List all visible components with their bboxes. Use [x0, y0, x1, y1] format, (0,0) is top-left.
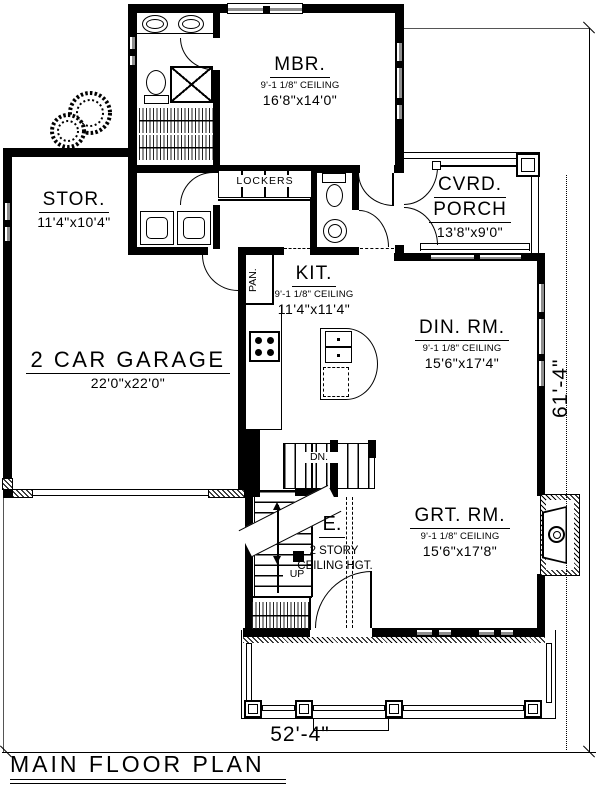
room-label-garage: 2 CAR GARAGE 22'0"x22'0": [16, 348, 240, 391]
toilet-tank: [322, 173, 346, 183]
extension-line: [404, 28, 590, 29]
wall-segment: [213, 205, 220, 249]
porch-step: [420, 249, 530, 250]
wall-segment: [128, 4, 137, 169]
porch-railing: [403, 705, 524, 711]
porch-step-edge: [529, 243, 530, 251]
porch-post: [516, 153, 540, 177]
entry-closet-hatch: [252, 602, 309, 629]
porch-post: [244, 700, 262, 718]
kitchen-counter: [246, 305, 282, 430]
window: [227, 3, 303, 14]
wall-segment: [537, 445, 545, 496]
dimension-height-label: 61'-4": [550, 336, 576, 440]
window: [430, 254, 522, 260]
opening-dashed: [338, 443, 368, 444]
bench-line: [218, 199, 312, 201]
porch-railing: [546, 643, 552, 703]
entry-note-2: CEILING HGT.: [296, 560, 374, 572]
room-label-porch: CVRD. PORCH 13'8"x9'0": [414, 175, 526, 240]
wall-segment: [395, 245, 404, 261]
door-swing: [202, 255, 238, 291]
closet-rod-hatch: [139, 108, 213, 133]
closet-wall: [309, 596, 311, 630]
wall-segment: [3, 148, 12, 498]
porch-post: [385, 700, 403, 718]
extension-line-dotted: [566, 175, 567, 750]
door-swing: [180, 172, 213, 205]
porch-beam: [440, 165, 520, 167]
toilet-tank: [144, 95, 169, 104]
stair-direction-line: [277, 505, 279, 593]
sink-basin: [142, 15, 168, 33]
cooktop: [249, 331, 280, 362]
window: [129, 36, 136, 66]
toilet: [326, 184, 343, 207]
dimension-line-right: [589, 28, 590, 752]
room-label-grt: GRT. RM. 9'-1 1/8" CEILING 15'6"x17'8": [402, 506, 518, 559]
toilet: [146, 70, 166, 95]
porch-railing: [246, 643, 252, 703]
wall-hatch: [2, 478, 13, 490]
round-sink: [323, 219, 347, 243]
title-underline: [10, 779, 286, 784]
door-swing: [359, 210, 389, 247]
fireplace-flue: [548, 526, 565, 543]
wall-segment: [310, 247, 359, 255]
window: [396, 42, 403, 120]
stair-arrow: [273, 556, 281, 564]
opening-dashed: [284, 248, 310, 249]
garage-door: [33, 489, 208, 496]
porch-post: [524, 700, 542, 718]
threshold-hatch: [243, 637, 545, 643]
stair-dn-label: DN.: [300, 452, 338, 463]
extension-line: [3, 498, 4, 752]
door-leaf: [370, 571, 372, 628]
dryer: [177, 211, 211, 245]
dishwasher: [323, 367, 349, 397]
stair-arrow: [273, 502, 281, 510]
wall-segment: [537, 574, 545, 637]
window: [4, 202, 11, 242]
entry-note-1: 2 STORY: [302, 545, 366, 557]
pantry-label: PAN.: [248, 258, 264, 302]
window: [538, 283, 545, 387]
island-sink: [325, 347, 352, 363]
beam-anchor: [432, 161, 441, 170]
wall-segment: [213, 13, 220, 38]
porch-step: [420, 243, 530, 244]
porch-step-edge: [420, 243, 421, 251]
room-label-kit: KIT. 9'-1 1/8" CEILING 11'4"x11'4": [262, 264, 366, 317]
stair-upper-run: [283, 443, 375, 489]
porch-railing: [313, 705, 385, 711]
room-label-mbr: MBR. 9'-1 1/8" CEILING 16'8"x14'0": [238, 55, 362, 108]
garage-door-jamb: [12, 489, 33, 498]
dimension-width-label: 52'-4": [240, 724, 360, 746]
wall-segment: [213, 70, 220, 172]
porch-railing: [262, 705, 295, 711]
room-label-entry: E.: [310, 514, 354, 538]
door-leaf: [392, 173, 394, 206]
porch-post: [295, 700, 313, 718]
sink-basin: [178, 15, 204, 33]
room-label-stor: STOR. 11'4"x10'4": [18, 190, 130, 230]
washer: [140, 211, 174, 245]
floor-plan: LOCKERS DN. UP: [0, 0, 600, 788]
door-swing: [358, 173, 394, 206]
garage-door-jamb: [208, 489, 245, 498]
front-door-swing: [315, 571, 372, 628]
closet-rod-hatch: [139, 135, 213, 160]
opening-dashed: [360, 248, 394, 249]
lockers-label: LOCKERS: [218, 176, 312, 188]
trees-icon: [48, 90, 114, 152]
shower: [170, 66, 213, 103]
page-title: MAIN FLOOR PLAN: [10, 752, 300, 776]
wall-segment: [246, 430, 260, 497]
wall-segment: [128, 247, 208, 255]
island-sink: [325, 331, 352, 347]
wall-segment: [238, 247, 284, 255]
room-label-din: DIN. RM. 9'-1 1/8" CEILING 15'6"x17'4": [406, 318, 518, 371]
